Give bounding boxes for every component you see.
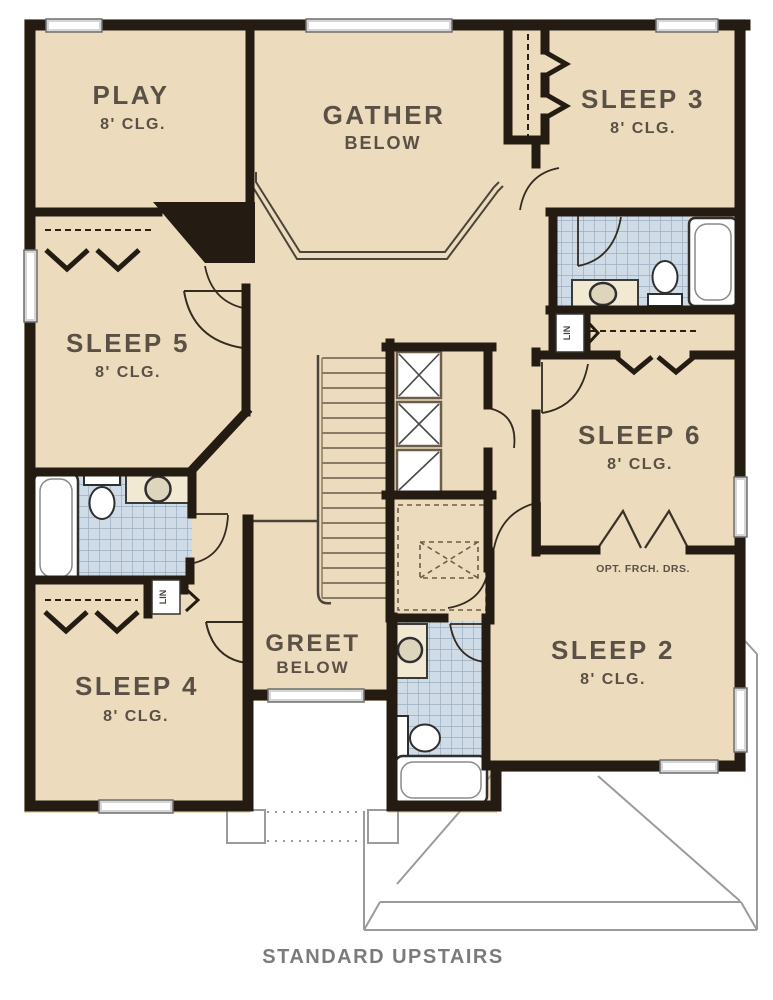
toilet-bowl bbox=[90, 487, 115, 519]
room-label-greet: GREET bbox=[265, 630, 360, 657]
window bbox=[306, 19, 452, 32]
window bbox=[734, 477, 747, 537]
room-label-sleep4: SLEEP 4 bbox=[75, 671, 199, 701]
floorplan-page: LIN LIN PLAY 8' CLG. GATHER BELOW SLEEP … bbox=[0, 0, 773, 1000]
optional-doors-note: OPT. FRCH. DRS. bbox=[596, 563, 690, 575]
room-label-gather: GATHER bbox=[323, 100, 446, 130]
floorplan-drawing: LIN LIN PLAY 8' CLG. GATHER BELOW SLEEP … bbox=[0, 0, 773, 1000]
utility-closet-shelves bbox=[397, 352, 441, 492]
window bbox=[24, 250, 37, 322]
toilet-bowl bbox=[410, 725, 440, 752]
room-detail-play: 8' CLG. bbox=[100, 116, 166, 133]
room-label-sleep2: SLEEP 2 bbox=[551, 635, 675, 665]
linen-label-1: LIN bbox=[562, 326, 572, 341]
room-detail-sleep2: 8' CLG. bbox=[580, 671, 646, 688]
window bbox=[46, 19, 102, 32]
room-detail-sleep3: 8' CLG. bbox=[610, 120, 676, 137]
room-label-play: PLAY bbox=[93, 80, 170, 110]
room-label-sleep5: SLEEP 5 bbox=[66, 328, 190, 358]
room-detail-sleep5: 8' CLG. bbox=[95, 364, 161, 381]
room-label-sleep6: SLEEP 6 bbox=[578, 420, 702, 450]
sink bbox=[146, 477, 171, 502]
window bbox=[99, 800, 173, 813]
plan-caption: STANDARD UPSTAIRS bbox=[262, 946, 503, 968]
room-label-sleep3: SLEEP 3 bbox=[581, 84, 705, 114]
room-detail-gather: BELOW bbox=[345, 133, 422, 153]
room-detail-sleep4: 8' CLG. bbox=[103, 708, 169, 725]
linen-label-2: LIN bbox=[158, 590, 168, 605]
window bbox=[660, 760, 718, 773]
sink bbox=[398, 638, 422, 662]
room-detail-greet: BELOW bbox=[276, 658, 349, 677]
room-detail-sleep6: 8' CLG. bbox=[607, 456, 673, 473]
window bbox=[268, 689, 364, 702]
window bbox=[734, 688, 747, 752]
window bbox=[656, 19, 718, 32]
toilet-tank bbox=[648, 294, 682, 306]
sink bbox=[590, 283, 616, 305]
toilet-bowl bbox=[653, 261, 678, 293]
